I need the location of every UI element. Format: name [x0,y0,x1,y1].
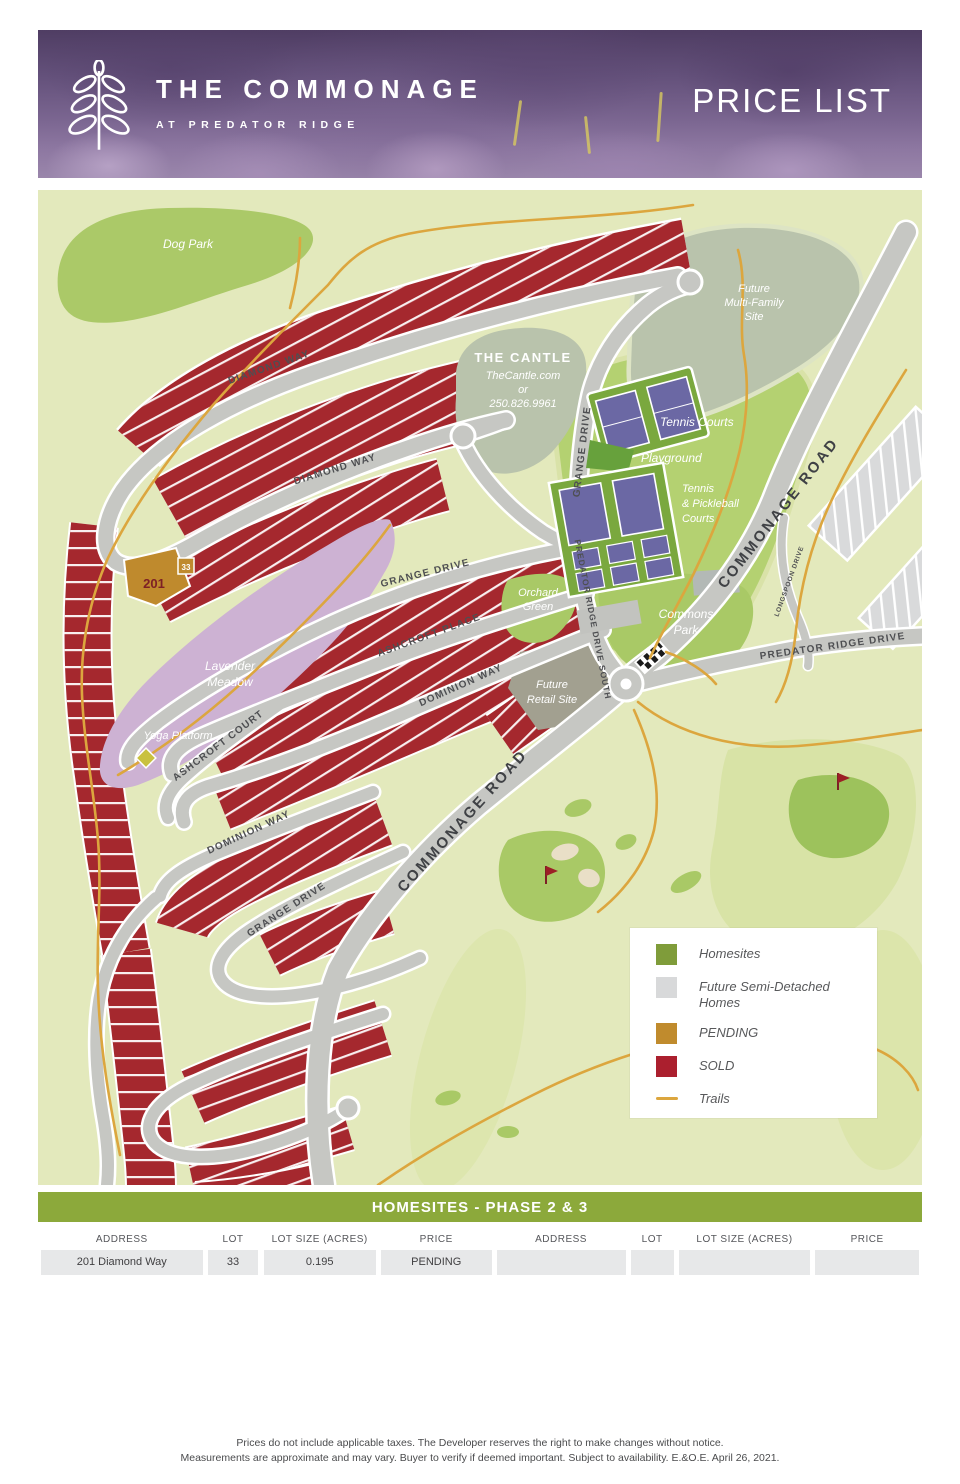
column-header-lot-size: LOT SIZE (ACRES) [264,1228,376,1251]
pickleball-courts [549,463,683,597]
grass-accent [656,92,662,142]
legend-label: Trails [699,1089,730,1107]
grass-accent [513,100,522,146]
future-retail-label: Retail Site [527,694,577,706]
lavender-meadow-label: Meadow [207,675,254,689]
pickleball-label: & Pickleball [682,498,739,510]
legend-item-future-semi-detached: Future Semi-Detached Homes [656,977,877,1011]
column-header-address: ADDRESS [41,1228,203,1251]
cell-lot-size: 0.195 [264,1250,376,1275]
column-header-address: ADDRESS [497,1228,626,1251]
cantle-web-label: TheCantle.com [486,370,561,382]
column-header-lot: LOT [208,1228,259,1251]
brand-name: THE COMMONAGE [156,74,484,105]
lot-201-label: 201 [143,576,165,591]
orchard-green-label: Orchard [518,587,559,599]
legend-item-homesites: Homesites [656,944,877,965]
legend-label: PENDING [699,1023,758,1041]
cell-price: PENDING [381,1250,492,1275]
brand-logo-icon [66,60,132,152]
cell-lot [631,1250,674,1275]
map-legend: Homesites Future Semi-Detached Homes PEN… [630,928,877,1118]
table-header-row: ADDRESS LOT LOT SIZE (ACRES) PRICE ADDRE… [41,1228,919,1251]
dog-park-label: Dog Park [163,237,214,251]
cell-lot: 33 [208,1250,259,1275]
cul-de-sac [451,424,475,448]
commons-park-label: Park [674,623,700,637]
legend-item-trails: Trails [656,1089,877,1107]
legend-item-pending: PENDING [656,1023,877,1044]
sold-swatch [656,1056,677,1077]
table-title: HOMESITES - PHASE 2 & 3 [372,1199,588,1216]
cul-de-sac [337,1097,359,1119]
yoga-platform-label: Yoga Platform [143,730,212,742]
legend-label: SOLD [699,1056,734,1074]
cell-price [815,1250,919,1275]
trails-swatch [656,1097,678,1100]
column-header-price: PRICE [381,1228,492,1251]
future-mf-label: Multi-Family [724,297,785,309]
cul-de-sac [678,270,702,294]
orchard-green-label: Green [523,601,554,613]
tennis-courts-label: Tennis Courts [660,415,734,429]
cantle-name-label: THE CANTLE [474,350,571,365]
homesites-swatch [656,944,677,965]
cantle-phone-label: 250.826.9961 [488,398,556,410]
pickleball-label: Courts [682,513,715,525]
future-retail-label: Future [536,679,568,691]
lavender-meadow-label: Lavender [205,659,256,673]
future-mf-label: Future [738,283,770,295]
legend-label: Homesites [699,944,760,962]
table-title-bar: HOMESITES - PHASE 2 & 3 [38,1192,922,1222]
column-header-lot: LOT [631,1228,674,1251]
pickleball-label: Tennis [682,483,715,495]
site-map: 201 33 Dog Park THE CANTLE TheCantle.com… [38,190,922,1185]
brand-subtitle: AT PREDATOR RIDGE [156,119,484,131]
footer-disclaimer: Prices do not include applicable taxes. … [0,1436,960,1466]
pending-swatch [656,1023,677,1044]
cell-address: 201 Diamond Way [41,1250,203,1275]
cantle-or-label: or [518,384,529,396]
table-row: 201 Diamond Way 33 0.195 PENDING [41,1250,919,1275]
brand-block: THE COMMONAGE AT PREDATOR RIDGE [156,74,484,131]
legend-label: Future Semi-Detached Homes [699,977,849,1011]
cell-lot-size [679,1250,811,1275]
lot-201-badge-label: 33 [182,563,191,572]
column-header-price: PRICE [815,1228,919,1251]
legend-item-sold: SOLD [656,1056,877,1077]
disclaimer-line-1: Prices do not include applicable taxes. … [0,1436,960,1451]
future-semi-detached-swatch [656,977,677,998]
commons-park-label: Commons [659,607,714,621]
page: { "header": { "brand_name": "THE COMMONA… [0,0,960,1484]
future-mf-label: Site [745,311,764,323]
grass-accent [584,116,591,154]
header-banner: THE COMMONAGE AT PREDATOR RIDGE PRICE LI… [38,30,922,178]
playground-label: Playground [641,451,702,465]
disclaimer-line-2: Measurements are approximate and may var… [0,1451,960,1466]
column-header-lot-size: LOT SIZE (ACRES) [679,1228,811,1251]
cell-address [497,1250,626,1275]
page-title: PRICE LIST [692,82,892,120]
